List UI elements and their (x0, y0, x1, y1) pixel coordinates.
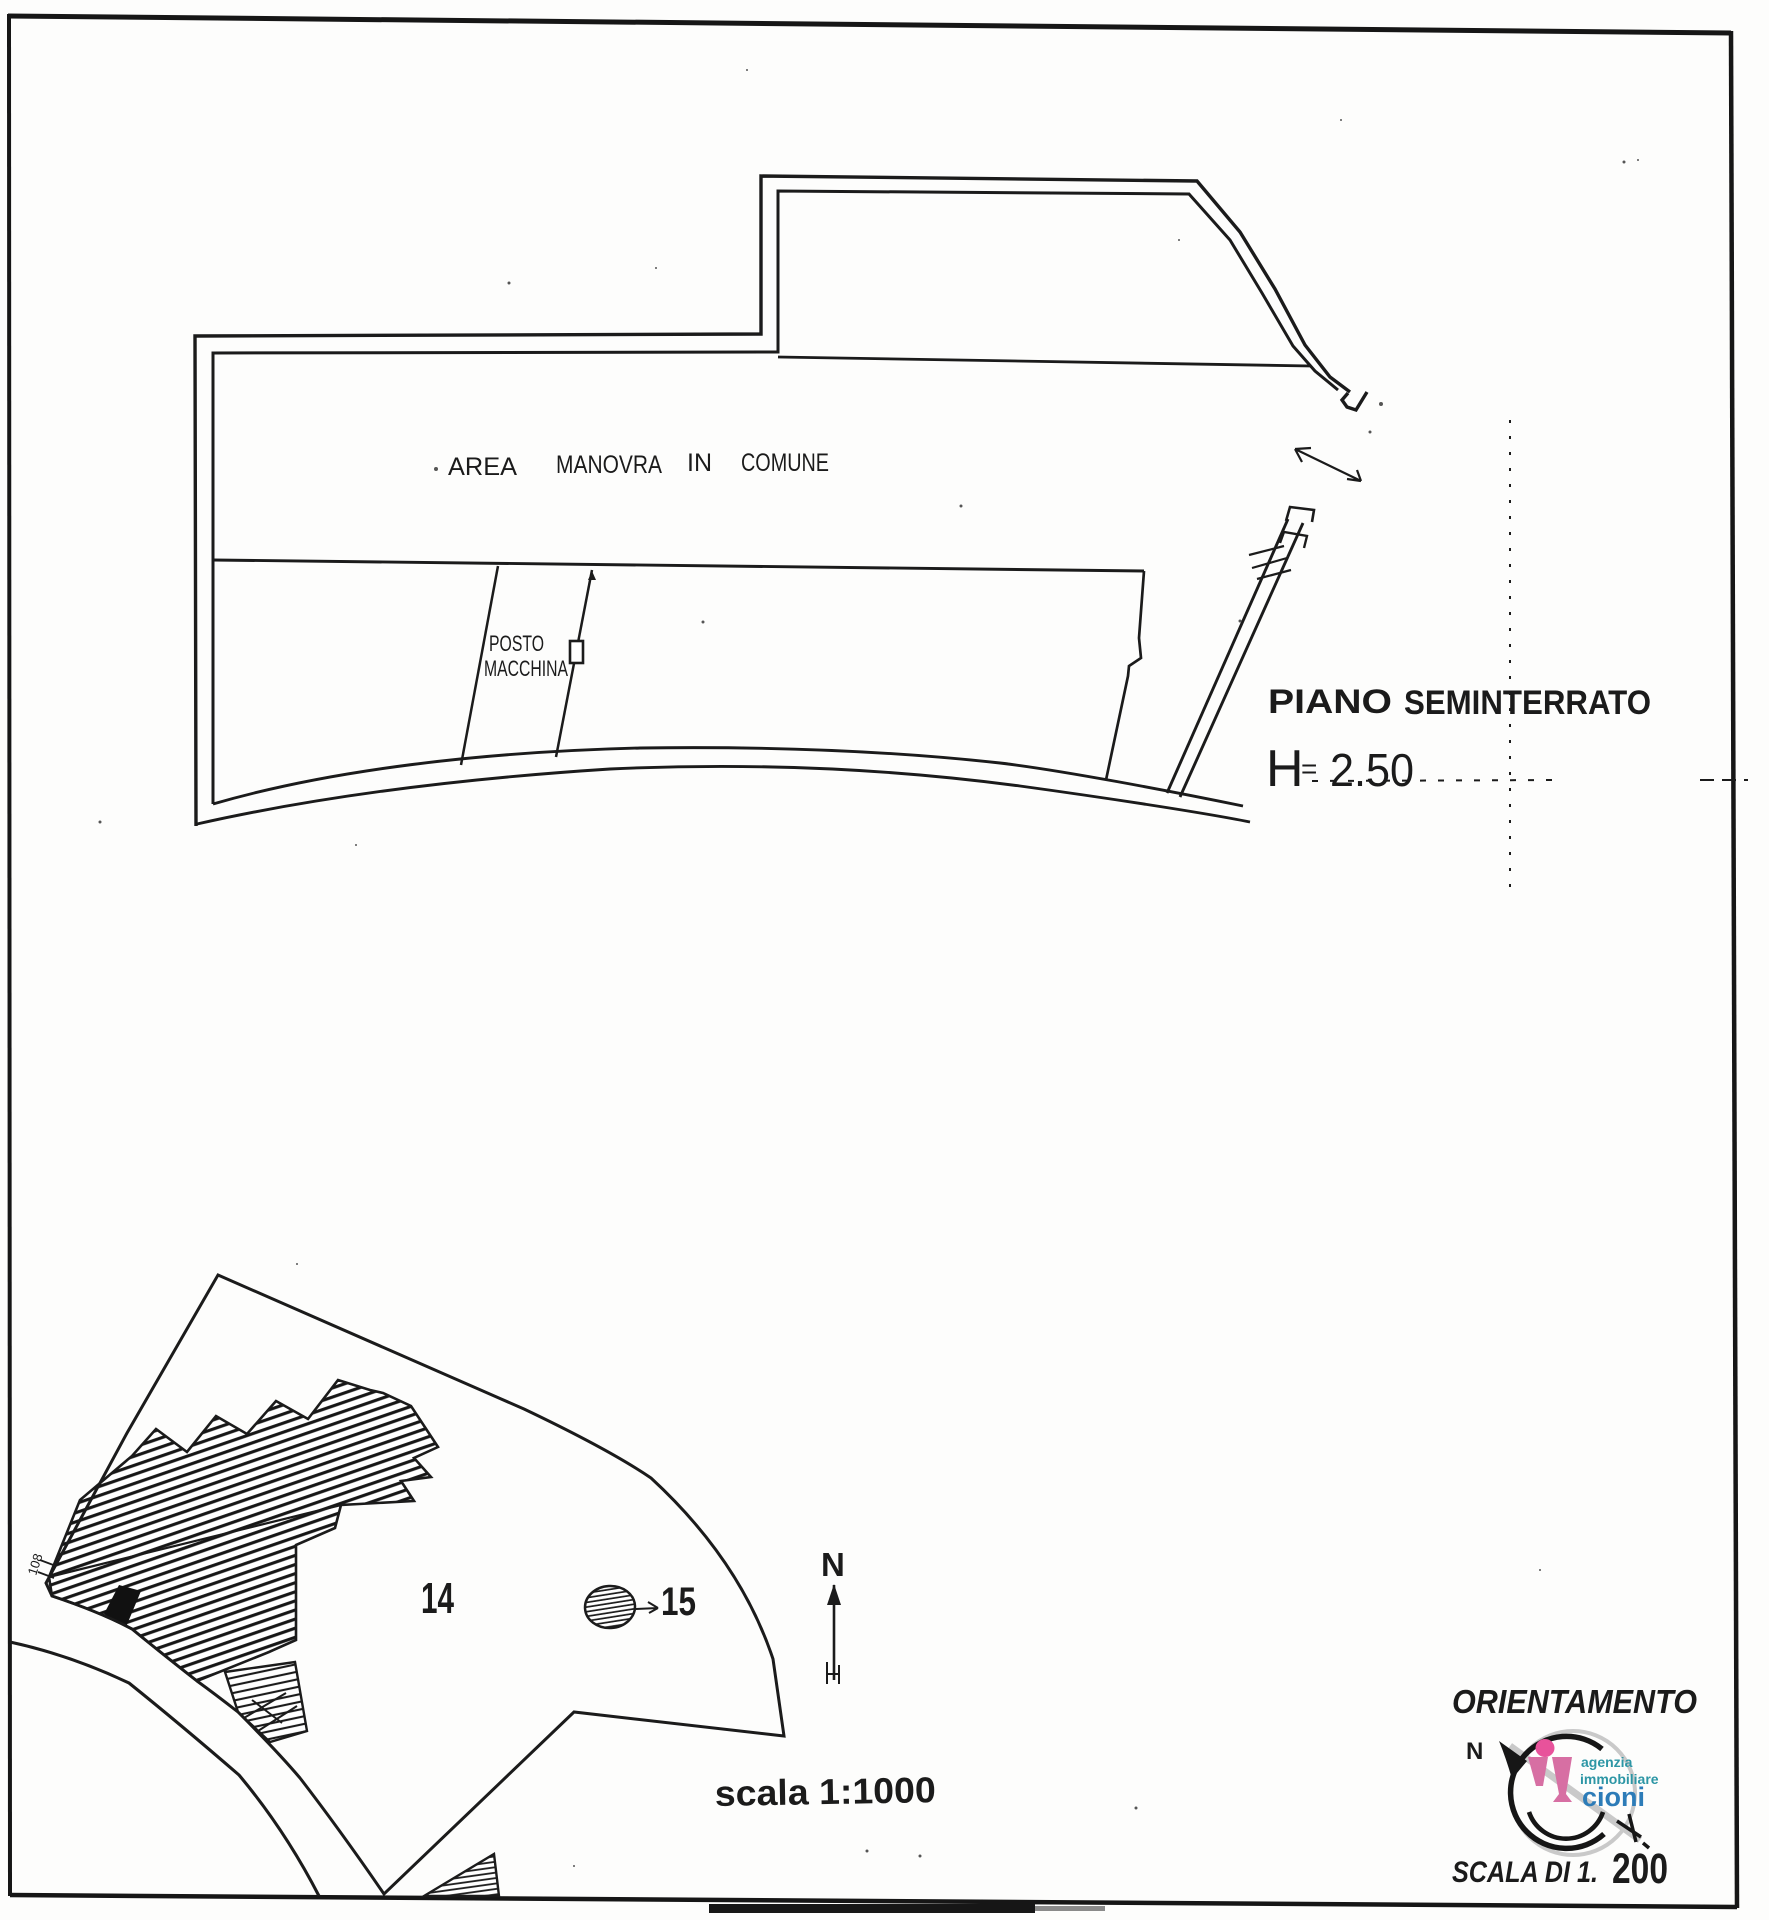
svg-text:SEMINTERRATO: SEMINTERRATO (1404, 684, 1651, 722)
svg-text:IN: IN (687, 449, 712, 477)
svg-text:N: N (821, 1546, 845, 1583)
svg-text:14: 14 (421, 1574, 454, 1623)
svg-text:2.50: 2.50 (1330, 744, 1414, 796)
svg-text:ORIENTAMENTO: ORIENTAMENTO (1452, 1683, 1697, 1720)
svg-text:COMUNE: COMUNE (741, 449, 829, 477)
svg-text:POSTO: POSTO (489, 631, 544, 656)
svg-text:PIANO: PIANO (1268, 683, 1392, 721)
svg-text:scala 1:1000: scala 1:1000 (714, 1769, 936, 1814)
svg-text:=: = (1301, 753, 1317, 784)
svg-text:H: H (1266, 740, 1304, 798)
svg-text:N: N (1466, 1738, 1483, 1765)
svg-text:15: 15 (661, 1580, 696, 1624)
svg-text:MACCHINA: MACCHINA (484, 656, 568, 681)
svg-text:200: 200 (1612, 1845, 1668, 1893)
svg-text:SCALA DI 1.: SCALA DI 1. (1452, 1856, 1598, 1889)
svg-text:MANOVRA: MANOVRA (556, 451, 662, 479)
svg-text:agenzia: agenzia (1581, 1754, 1633, 1770)
svg-text:AREA: AREA (448, 453, 517, 481)
svg-text:cioni: cioni (1582, 1782, 1645, 1812)
